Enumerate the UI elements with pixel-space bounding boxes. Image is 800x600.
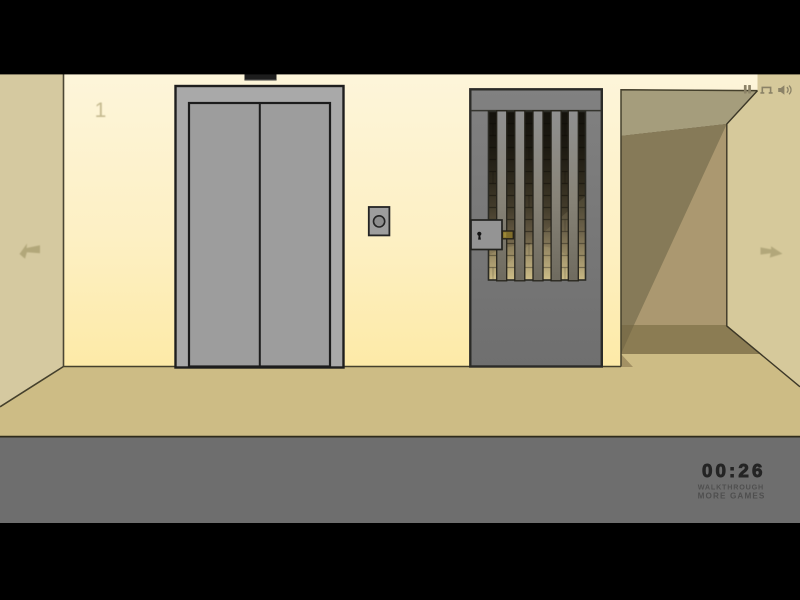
svg-text:00:26: 00:26 — [702, 460, 766, 481]
svg-text:1: 1 — [95, 99, 107, 122]
svg-text:WALKTHROUGH: WALKTHROUGH — [698, 483, 764, 492]
svg-text:MORE GAMES: MORE GAMES — [698, 492, 766, 501]
